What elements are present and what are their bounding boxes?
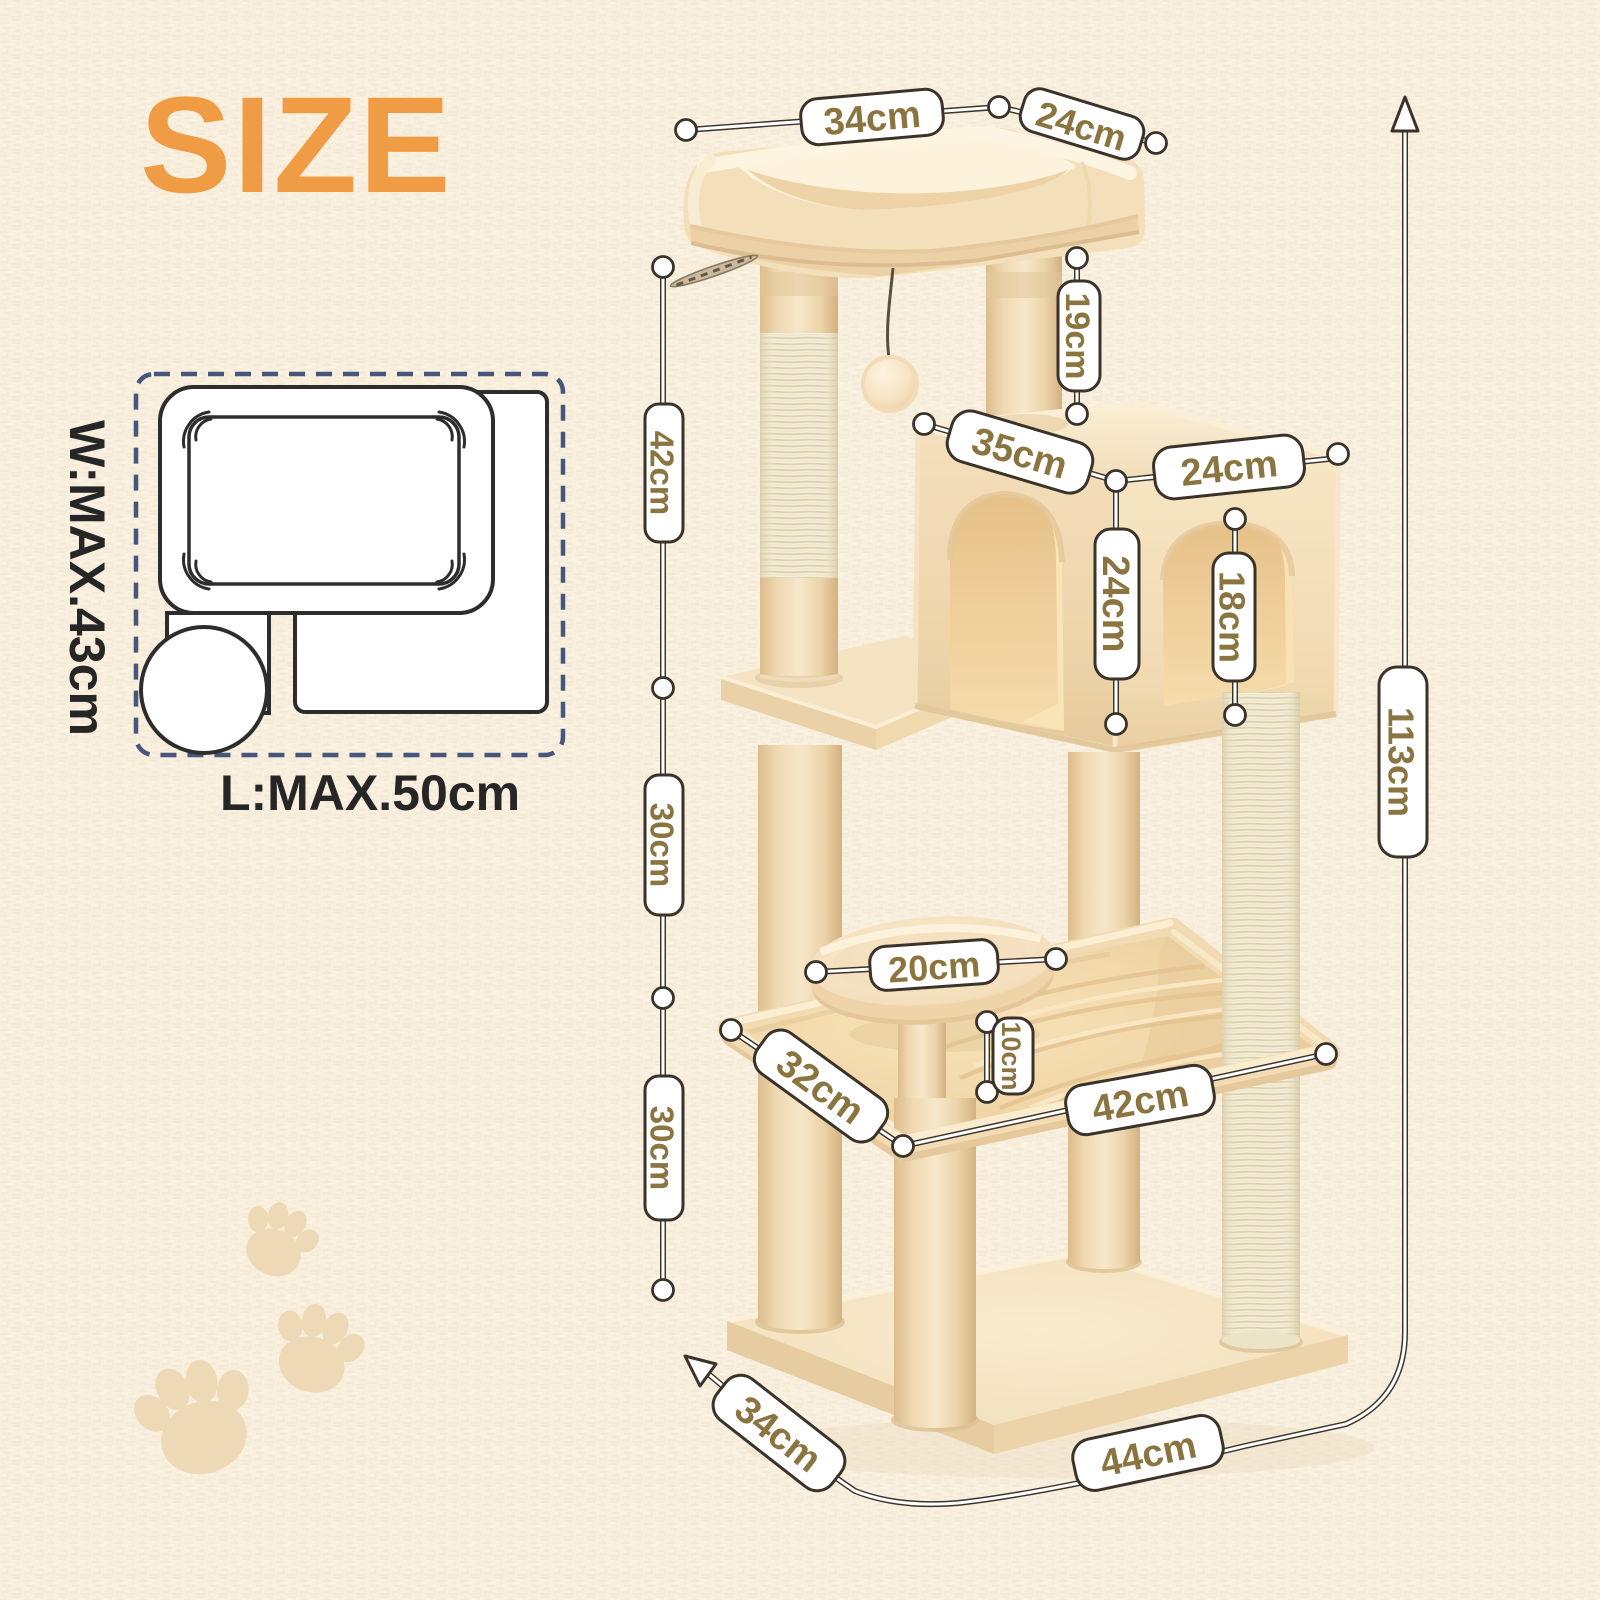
svg-text:113cm: 113cm: [1381, 707, 1422, 817]
svg-text:34cm: 34cm: [822, 94, 922, 144]
svg-text:30cm: 30cm: [644, 1106, 681, 1190]
svg-text:L:MAX.50cm: L:MAX.50cm: [220, 765, 520, 821]
svg-text:18cm: 18cm: [1212, 571, 1253, 663]
svg-text:42cm: 42cm: [644, 431, 681, 515]
svg-text:10cm: 10cm: [996, 1021, 1026, 1090]
svg-text:19cm: 19cm: [1058, 293, 1096, 380]
svg-text:24cm: 24cm: [1094, 555, 1136, 652]
svg-text:W:MAX.43cm: W:MAX.43cm: [59, 420, 115, 736]
svg-text:30cm: 30cm: [644, 803, 681, 887]
svg-text:20cm: 20cm: [887, 943, 982, 990]
svg-text:SIZE: SIZE: [140, 69, 453, 222]
